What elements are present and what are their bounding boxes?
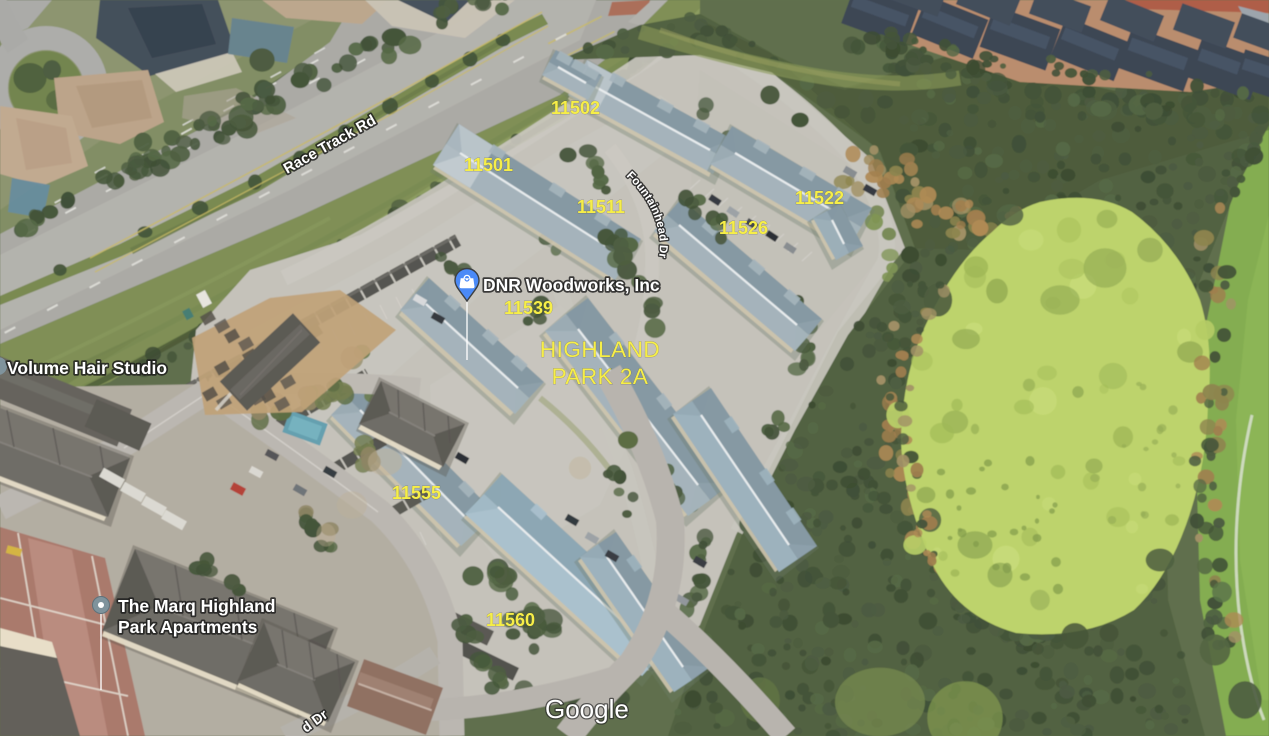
svg-text:11522: 11522 (795, 188, 844, 208)
svg-text:11539: 11539 (504, 298, 553, 318)
svg-text:11502: 11502 (551, 98, 600, 118)
svg-text:The Marq Highland: The Marq Highland (118, 596, 276, 616)
svg-text:11501: 11501 (464, 155, 513, 175)
svg-text:PARK 2A: PARK 2A (552, 364, 649, 389)
svg-text:11560: 11560 (486, 610, 535, 630)
svg-text:DNR Woodworks, Inc: DNR Woodworks, Inc (483, 275, 660, 295)
svg-text:Google: Google (545, 694, 629, 724)
svg-text:11555: 11555 (392, 483, 441, 503)
svg-text:Park Apartments: Park Apartments (118, 617, 258, 637)
svg-text:11526: 11526 (719, 218, 768, 238)
svg-text:HIGHLAND: HIGHLAND (540, 337, 660, 362)
svg-text:11511: 11511 (577, 197, 625, 217)
svg-text:Volume Hair Studio: Volume Hair Studio (7, 358, 167, 378)
